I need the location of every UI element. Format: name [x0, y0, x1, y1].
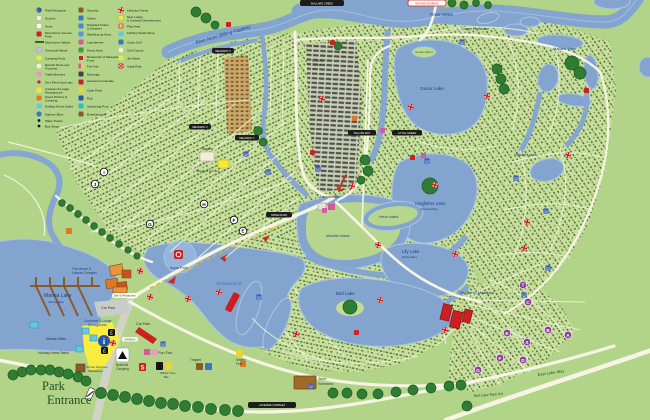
svg-text:Services: Services [318, 381, 333, 386]
svg-text:Tourers: Tourers [45, 17, 56, 21]
svg-text:B: B [546, 328, 550, 334]
svg-text:Crazy Golf: Crazy Golf [127, 41, 142, 45]
svg-text:Car Park: Car Park [101, 306, 115, 310]
svg-text:Entrance: Entrance [47, 393, 92, 407]
svg-text:Aqua Park: Aqua Park [127, 65, 142, 69]
svg-text:S: S [140, 366, 144, 372]
svg-text:MEADWAY 1: MEADWAY 1 [239, 136, 255, 140]
svg-text:C: C [526, 300, 530, 306]
svg-text:Heron Island: Heron Island [379, 215, 398, 219]
svg-text:NATURE RESERVE: NATURE RESERVE [415, 1, 439, 5]
svg-text:Chemical Waste: Chemical Waste [45, 49, 68, 53]
svg-text:Amusement Arcade: Amusement Arcade [87, 79, 114, 83]
svg-text:Marina Office: Marina Office [45, 113, 64, 117]
svg-text:Car Park: Car Park [136, 322, 150, 326]
svg-text:LAKESIDE COMPLEX: LAKESIDE COMPLEX [259, 403, 285, 407]
svg-text:Aqua Park: Aqua Park [170, 266, 188, 270]
svg-text:Water Points: Water Points [45, 119, 63, 123]
svg-text:Showground: Showground [45, 91, 63, 95]
svg-text:Camping: Camping [116, 367, 129, 371]
svg-text:Pub: Pub [87, 97, 93, 101]
svg-text:LITTLE GREEN: LITTLE GREEN [398, 131, 417, 135]
svg-text:Golf Course: Golf Course [127, 49, 144, 53]
svg-text:Security: Security [87, 9, 99, 13]
svg-text:Jet Wash: Jet Wash [127, 57, 140, 61]
svg-text:River Nene: River Nene [430, 12, 453, 17]
svg-text:Fun Fair: Fun Fair [87, 65, 99, 69]
svg-text:Gocar Lake: Gocar Lake [420, 86, 444, 91]
svg-text:(Tourers): (Tourers) [45, 67, 57, 71]
svg-text:Kingfisher Meadows: Kingfisher Meadows [460, 291, 494, 295]
svg-text:Holiday Home Sales: Holiday Home Sales [45, 105, 73, 109]
svg-text:Fishing Tackle Shop: Fishing Tackle Shop [127, 31, 155, 35]
svg-text:& Showers: & Showers [87, 27, 102, 31]
svg-text:Bird Lake: Bird Lake [336, 291, 355, 296]
svg-text:Washing-up Area: Washing-up Area [87, 33, 111, 37]
svg-text:Bar: Bar [164, 375, 169, 379]
svg-text:F: F [499, 356, 502, 362]
svg-text:Kingfisher Lake: Kingfisher Lake [415, 201, 446, 206]
svg-text:T: T [522, 283, 525, 289]
svg-text:Tents: Tents [45, 25, 53, 29]
svg-text:Launderette: Launderette [87, 41, 104, 45]
svg-text:(fishing lake): (fishing lake) [48, 300, 64, 304]
svg-text:Motorhome Waste: Motorhome Waste [45, 41, 70, 45]
svg-text:Marina Office: Marina Office [46, 337, 66, 341]
svg-text:Play Area: Play Area [127, 25, 141, 29]
svg-text:Leisure Complex: Leisure Complex [72, 271, 97, 275]
svg-text:Toilets: Toilets [87, 17, 96, 21]
svg-text:Mallard View: Mallard View [553, 46, 576, 51]
svg-text:Shelduck Terrace: Shelduck Terrace [196, 169, 219, 173]
svg-text:£: £ [110, 331, 113, 337]
svg-text:Feet: Feet [236, 362, 242, 366]
svg-text:Mallard Lakes: Mallard Lakes [514, 153, 537, 157]
svg-text:D: D [521, 358, 525, 364]
svg-text:WILLOW WAY: WILLOW WAY [354, 131, 371, 135]
svg-text:G: G [476, 368, 480, 374]
svg-text:Bus Stops: Bus Stops [45, 125, 60, 129]
svg-text:Park: Park [42, 379, 66, 393]
svg-text:£: £ [103, 349, 106, 355]
svg-text:Launderette: Launderette [320, 195, 339, 199]
svg-text:MEADWAY 2: MEADWAY 2 [192, 125, 208, 129]
svg-text:Shadowland: Shadowland [216, 281, 242, 286]
svg-text:Tangens: Tangens [201, 147, 213, 151]
svg-text:Takeaways: Takeaways [88, 369, 103, 373]
svg-text:(private fishing): (private fishing) [420, 207, 438, 211]
svg-text:Tregard: Tregard [190, 358, 201, 362]
svg-text:(fishing lake): (fishing lake) [402, 255, 417, 259]
svg-text:Point: Point [45, 35, 52, 39]
svg-text:Grain Pastures: Grain Pastures [462, 26, 489, 31]
svg-text:Cash Point: Cash Point [87, 89, 102, 93]
svg-text:Marina Lake: Marina Lake [44, 293, 72, 299]
svg-text:G: G [148, 222, 152, 228]
svg-text:Moorings: Moorings [87, 73, 100, 77]
svg-text:MEADWAY 6: MEADWAY 6 [215, 49, 231, 53]
svg-text:F: F [233, 218, 236, 224]
svg-text:Food: Food [87, 59, 94, 63]
svg-text:Entertainment: Entertainment [87, 113, 106, 117]
svg-text:Showground: Showground [88, 323, 107, 327]
svg-text:Bar & Restaurant: Bar & Restaurant [114, 294, 136, 298]
svg-text:Goose Island: Goose Island [415, 50, 433, 54]
svg-text:J: J [94, 182, 97, 188]
svg-text:Camping Pods: Camping Pods [45, 57, 66, 61]
svg-text:MARINA: MARINA [125, 337, 136, 341]
svg-text:Holiday Home Sales: Holiday Home Sales [38, 351, 69, 355]
svg-text:Park Reception: Park Reception [45, 9, 66, 13]
svg-text:Traffic Barriers: Traffic Barriers [45, 73, 66, 77]
svg-text:Lily Lake: Lily Lake [402, 249, 420, 254]
svg-text:MALLARD CREEK: MALLARD CREEK [311, 1, 333, 5]
svg-text:H: H [202, 202, 206, 208]
svg-text:Picnic Area: Picnic Area [87, 49, 103, 53]
svg-text:Swimming Pool: Swimming Pool [87, 105, 109, 109]
svg-text:Moorhen Island: Moorhen Island [326, 234, 349, 238]
svg-text:Fun Fair: Fun Fair [158, 351, 173, 355]
svg-text:Drive: Drive [313, 63, 321, 67]
svg-text:A: A [566, 333, 570, 339]
svg-text:& Caravan Development: & Caravan Development [127, 19, 161, 23]
svg-text:Camping: Camping [45, 99, 58, 103]
svg-text:Tent Pitch Hook-ups: Tent Pitch Hook-ups [45, 81, 73, 85]
svg-text:SPINE ROAD: SPINE ROAD [271, 213, 287, 217]
svg-text:Lifebuoy Points: Lifebuoy Points [127, 9, 149, 13]
